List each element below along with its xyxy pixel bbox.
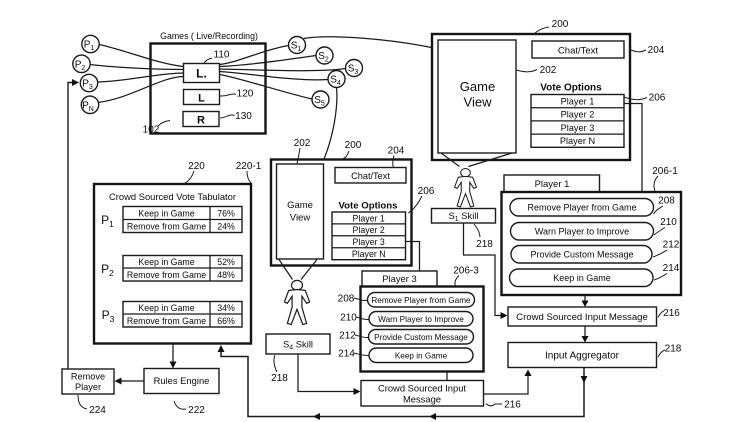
svg-text:Chat/Text: Chat/Text — [558, 46, 598, 57]
svg-text:102: 102 — [143, 125, 160, 136]
svg-text:210: 210 — [340, 313, 357, 324]
svg-text:Keep in Game: Keep in Game — [138, 257, 194, 267]
svg-text:222: 222 — [188, 405, 205, 416]
svg-text:204: 204 — [388, 146, 405, 157]
svg-text:Player 3: Player 3 — [382, 273, 416, 284]
svg-text:208: 208 — [338, 294, 355, 305]
svg-text:Player 1: Player 1 — [561, 97, 595, 107]
svg-text:Remove Player from Game: Remove Player from Game — [371, 296, 471, 305]
svg-text:66%: 66% — [217, 316, 235, 326]
svg-text:206: 206 — [649, 93, 666, 104]
svg-text:Warn Player to Improve: Warn Player to Improve — [535, 227, 629, 237]
svg-text:Remove from Game: Remove from Game — [127, 316, 206, 326]
svg-text:Player: Player — [75, 382, 101, 392]
svg-text:Keep in Game: Keep in Game — [395, 351, 448, 360]
svg-text:Player N: Player N — [352, 249, 386, 259]
svg-text:130: 130 — [235, 111, 252, 122]
svg-text:206-3: 206-3 — [453, 266, 479, 277]
svg-text:120: 120 — [237, 89, 254, 100]
svg-text:200: 200 — [345, 140, 362, 151]
svg-text:Rules Engine: Rules Engine — [154, 375, 210, 386]
svg-text:224: 224 — [89, 405, 106, 416]
svg-text:Remove from Game: Remove from Game — [127, 222, 206, 232]
svg-text:216: 216 — [663, 308, 680, 319]
svg-text:24%: 24% — [217, 222, 235, 232]
svg-text:204: 204 — [648, 45, 665, 56]
svg-text:214: 214 — [338, 349, 355, 360]
svg-text:Message: Message — [403, 394, 441, 405]
svg-text:Crowd Sourced Input Message: Crowd Sourced Input Message — [516, 312, 648, 323]
svg-text:Game: Game — [287, 200, 313, 211]
svg-text:L.: L. — [196, 67, 207, 81]
svg-text:Keep in Game: Keep in Game — [553, 273, 611, 283]
svg-text:110: 110 — [214, 50, 230, 61]
svg-text:Crowd Sourced Vote Tabulator: Crowd Sourced Vote Tabulator — [109, 191, 236, 202]
svg-text:206-1: 206-1 — [652, 166, 678, 177]
svg-text:Player 3: Player 3 — [353, 237, 385, 247]
svg-text:R: R — [197, 115, 205, 127]
svg-text:Player 3: Player 3 — [561, 123, 595, 133]
svg-text:76%: 76% — [217, 209, 235, 219]
svg-text:Keep in Game: Keep in Game — [138, 209, 194, 219]
svg-text:Input Aggregator: Input Aggregator — [545, 351, 620, 362]
svg-text:View: View — [290, 213, 311, 224]
svg-text:Vote Options: Vote Options — [540, 83, 602, 94]
svg-text:Remove from Game: Remove from Game — [127, 270, 206, 280]
svg-text:48%: 48% — [217, 270, 235, 280]
svg-text:218: 218 — [665, 344, 682, 355]
svg-text:Crowd Sourced Input: Crowd Sourced Input — [378, 383, 466, 394]
svg-text:Player 2: Player 2 — [353, 225, 385, 235]
svg-text:Player N: Player N — [560, 136, 595, 146]
svg-text:216: 216 — [504, 400, 521, 411]
svg-text:Warn Player to Improve: Warn Player to Improve — [378, 315, 464, 324]
svg-text:Provide Custom Message: Provide Custom Message — [530, 250, 633, 260]
svg-text:212: 212 — [339, 331, 356, 342]
svg-text:Provide Custom Message: Provide Custom Message — [374, 333, 468, 342]
svg-text:200: 200 — [552, 19, 569, 30]
svg-text:Chat/Text: Chat/Text — [351, 171, 390, 181]
svg-text:220-1: 220-1 — [236, 161, 262, 172]
svg-text:218: 218 — [476, 239, 493, 250]
svg-text:Player 2: Player 2 — [561, 110, 595, 120]
svg-text:Remove: Remove — [71, 372, 105, 382]
svg-text:210: 210 — [660, 217, 677, 228]
svg-text:52%: 52% — [217, 257, 235, 267]
svg-text:208: 208 — [658, 196, 675, 207]
svg-text:218: 218 — [271, 373, 288, 384]
svg-text:Player 1: Player 1 — [535, 179, 570, 190]
svg-text:220: 220 — [188, 161, 205, 172]
svg-text:Vote Options: Vote Options — [339, 201, 398, 212]
svg-text:206: 206 — [418, 186, 435, 197]
svg-text:Remove Player from Game: Remove Player from Game — [527, 203, 636, 213]
svg-text:Games ( Live/Recording): Games ( Live/Recording) — [160, 31, 258, 41]
svg-text:Player 1: Player 1 — [353, 213, 385, 223]
svg-text:34%: 34% — [217, 303, 235, 313]
svg-text:Keep in Game: Keep in Game — [138, 303, 194, 313]
svg-text:212: 212 — [663, 240, 680, 251]
svg-text:202: 202 — [540, 65, 557, 76]
svg-text:202: 202 — [294, 138, 311, 149]
svg-text:Game: Game — [460, 79, 495, 94]
svg-text:L: L — [198, 93, 205, 105]
svg-text:214: 214 — [663, 263, 680, 274]
svg-text:View: View — [464, 95, 493, 110]
